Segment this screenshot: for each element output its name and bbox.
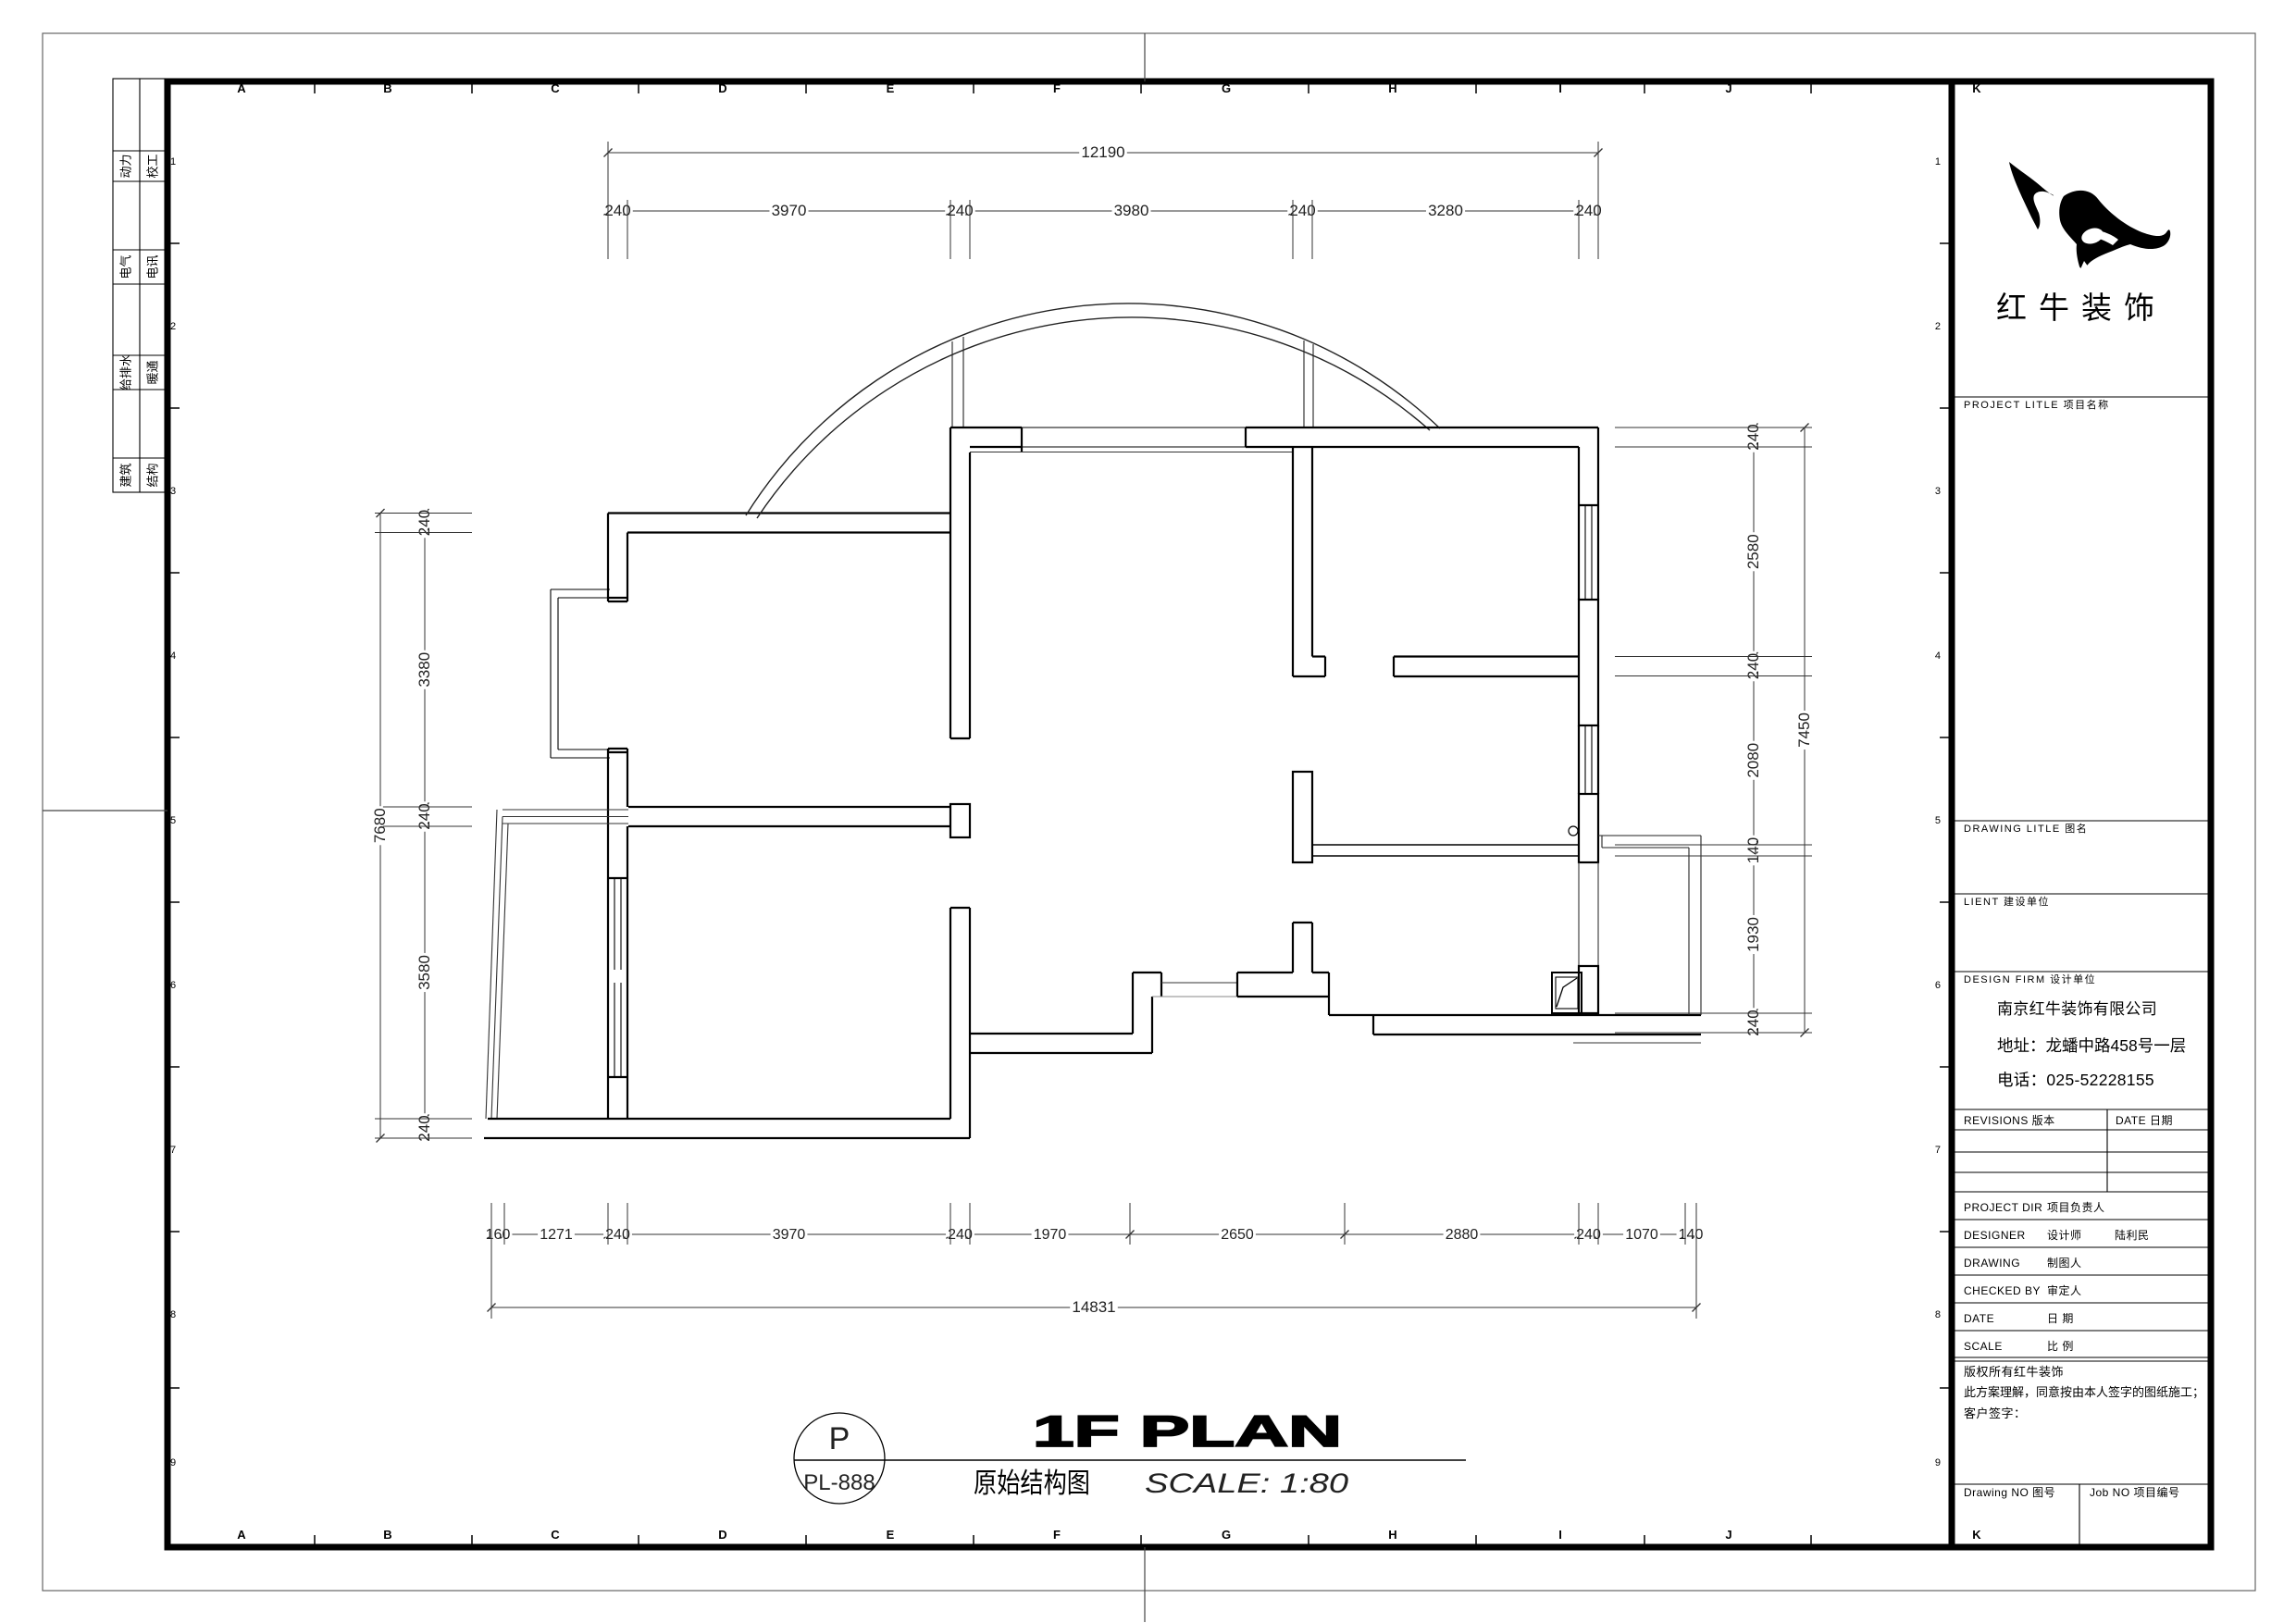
svg-text:PROJECT LITLE 项目名称: PROJECT LITLE 项目名称 [1964,398,2110,411]
svg-text:2650: 2650 [1221,1227,1254,1243]
svg-text:G: G [1222,1528,1231,1542]
svg-text:设计师: 设计师 [2047,1229,2082,1242]
svg-text:G: G [1222,81,1231,95]
svg-text:240: 240 [1576,1227,1601,1243]
svg-text:暖通: 暖通 [146,360,160,384]
svg-text:F: F [1053,81,1061,95]
svg-text:D: D [718,1528,726,1542]
svg-text:240: 240 [416,803,433,829]
svg-text:PROJECT DIR: PROJECT DIR [1964,1201,2042,1214]
svg-text:H: H [1388,1528,1396,1542]
svg-text:H: H [1388,81,1396,95]
svg-text:3: 3 [1935,486,1941,497]
svg-text:A: A [237,1528,246,1542]
svg-text:DESIGNER: DESIGNER [1964,1229,2026,1242]
svg-text:动力: 动力 [119,154,133,178]
svg-text:140: 140 [1679,1227,1704,1243]
svg-text:C: C [551,81,560,95]
svg-text:9: 9 [170,1457,176,1468]
svg-text:240: 240 [1575,202,1601,219]
svg-text:240: 240 [1744,1010,1762,1035]
svg-text:P: P [829,1421,850,1456]
svg-text:电话：025-52228155: 电话：025-52228155 [1997,1071,2154,1089]
svg-text:日 期: 日 期 [2047,1312,2074,1325]
svg-text:校工: 校工 [146,154,160,178]
svg-text:LIENT 建设单位: LIENT 建设单位 [1964,895,2050,908]
svg-text:4: 4 [1935,650,1941,662]
svg-text:SCALE: 1:80: SCALE: 1:80 [1145,1468,1348,1499]
svg-text:14831: 14831 [1072,1298,1115,1316]
svg-text:1070: 1070 [1625,1227,1658,1243]
svg-text:12190: 12190 [1081,143,1124,161]
svg-text:1930: 1930 [1744,917,1762,952]
svg-text:红牛装饰: 红牛装饰 [1996,291,2166,325]
svg-text:6: 6 [1935,980,1941,991]
svg-text:7: 7 [1935,1145,1941,1156]
svg-text:240: 240 [416,1115,433,1141]
svg-text:240: 240 [1744,653,1762,679]
svg-text:给排水: 给排水 [119,354,133,390]
svg-text:电讯: 电讯 [146,254,160,279]
svg-text:A: A [237,81,246,95]
svg-text:3970: 3970 [773,1227,806,1243]
svg-text:南京红牛装饰有限公司: 南京红牛装饰有限公司 [1997,1000,2157,1018]
svg-text:此方案理解，同意按由本人签字的图纸施工；: 此方案理解，同意按由本人签字的图纸施工； [1964,1385,2204,1400]
svg-text:240: 240 [604,202,630,219]
svg-text:240: 240 [1289,202,1315,219]
svg-text:D: D [718,81,726,95]
svg-text:6: 6 [170,980,176,991]
svg-text:建筑: 建筑 [119,463,133,487]
svg-text:1271: 1271 [540,1227,573,1243]
svg-text:2: 2 [1935,321,1941,332]
svg-text:1: 1 [1935,156,1941,167]
svg-text:B: B [383,81,391,95]
svg-text:DESIGN FIRM 设计单位: DESIGN FIRM 设计单位 [1964,973,2096,985]
svg-text:9: 9 [1935,1457,1941,1468]
svg-text:1F PLAN: 1F PLAN [1033,1406,1342,1456]
svg-text:版权所有红牛装饰: 版权所有红牛装饰 [1964,1365,2064,1379]
svg-text:1: 1 [170,156,176,167]
svg-text:DRAWING: DRAWING [1964,1257,2020,1270]
svg-text:I: I [1558,81,1562,95]
svg-text:140: 140 [1744,837,1762,863]
svg-text:2: 2 [170,321,176,332]
svg-text:1970: 1970 [1034,1227,1067,1243]
svg-text:J: J [1725,1528,1731,1542]
svg-text:陆利民: 陆利民 [2115,1228,2150,1242]
svg-text:2080: 2080 [1744,743,1762,778]
svg-text:结构: 结构 [146,463,160,487]
svg-text:240: 240 [416,510,433,536]
svg-text:C: C [551,1528,560,1542]
svg-text:2880: 2880 [1446,1227,1479,1243]
svg-text:电气: 电气 [119,254,133,279]
svg-text:E: E [887,81,895,95]
svg-text:I: I [1558,1528,1562,1542]
svg-text:CHECKED BY: CHECKED BY [1964,1284,2041,1297]
svg-text:240: 240 [1744,424,1762,450]
svg-text:审定人: 审定人 [2047,1283,2082,1297]
svg-text:5: 5 [170,815,176,826]
svg-text:3: 3 [170,486,176,497]
svg-text:K: K [1972,81,1981,95]
svg-text:4: 4 [170,650,176,662]
svg-text:7450: 7450 [1795,712,1813,748]
svg-text:240: 240 [948,1227,973,1243]
svg-text:比 例: 比 例 [2047,1340,2074,1353]
svg-text:REVISIONS 版本: REVISIONS 版本 [1964,1114,2055,1127]
svg-text:J: J [1725,81,1731,95]
svg-text:K: K [1972,1528,1981,1542]
svg-text:SCALE: SCALE [1964,1340,2003,1353]
svg-text:2580: 2580 [1744,534,1762,569]
svg-text:F: F [1053,1528,1061,1542]
svg-text:Drawing NO 图号: Drawing NO 图号 [1964,1486,2055,1499]
svg-text:B: B [383,1528,391,1542]
svg-text:3380: 3380 [416,652,433,688]
svg-text:E: E [887,1528,895,1542]
svg-text:240: 240 [947,202,973,219]
svg-text:地址：龙蟠中路458号一层: 地址：龙蟠中路458号一层 [1997,1036,2186,1055]
svg-text:8: 8 [170,1309,176,1320]
svg-text:3970: 3970 [772,202,807,219]
svg-text:DATE 日期: DATE 日期 [2116,1114,2173,1127]
svg-text:7680: 7680 [371,808,389,843]
svg-text:3280: 3280 [1428,202,1463,219]
svg-text:Job NO 项目编号: Job NO 项目编号 [2090,1485,2180,1499]
svg-text:7: 7 [170,1145,176,1156]
svg-text:5: 5 [1935,815,1941,826]
svg-text:PL-888: PL-888 [803,1470,875,1495]
svg-text:3580: 3580 [416,955,433,990]
svg-text:原始结构图: 原始结构图 [974,1468,1090,1499]
svg-text:160: 160 [486,1227,511,1243]
svg-text:项目负责人: 项目负责人 [2047,1201,2105,1214]
svg-text:制图人: 制图人 [2047,1257,2082,1270]
svg-text:240: 240 [605,1227,630,1243]
svg-text:客户签字：: 客户签字： [1964,1406,2027,1420]
svg-text:8: 8 [1935,1309,1941,1320]
svg-text:DATE: DATE [1964,1312,1994,1325]
svg-text:DRAWING LITLE 图名: DRAWING LITLE 图名 [1964,822,2088,835]
svg-text:3980: 3980 [1114,202,1149,219]
